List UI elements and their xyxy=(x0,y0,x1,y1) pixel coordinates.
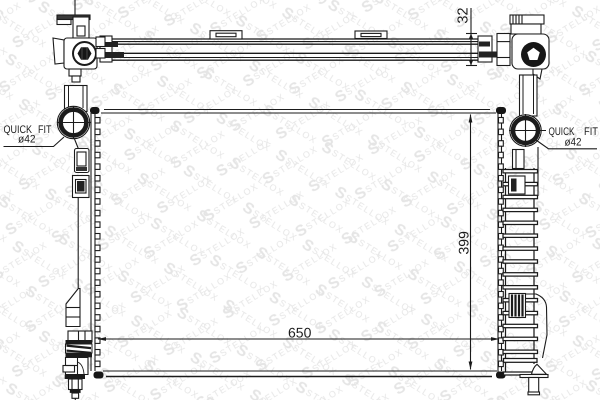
svg-text:ø42: ø42 xyxy=(18,134,36,146)
svg-text:32: 32 xyxy=(456,7,472,23)
svg-text:FIT: FIT xyxy=(38,124,52,136)
svg-text:399: 399 xyxy=(456,231,472,255)
svg-text:650: 650 xyxy=(288,325,312,341)
svg-text:FIT: FIT xyxy=(584,126,598,138)
svg-text:ø42: ø42 xyxy=(565,137,582,149)
